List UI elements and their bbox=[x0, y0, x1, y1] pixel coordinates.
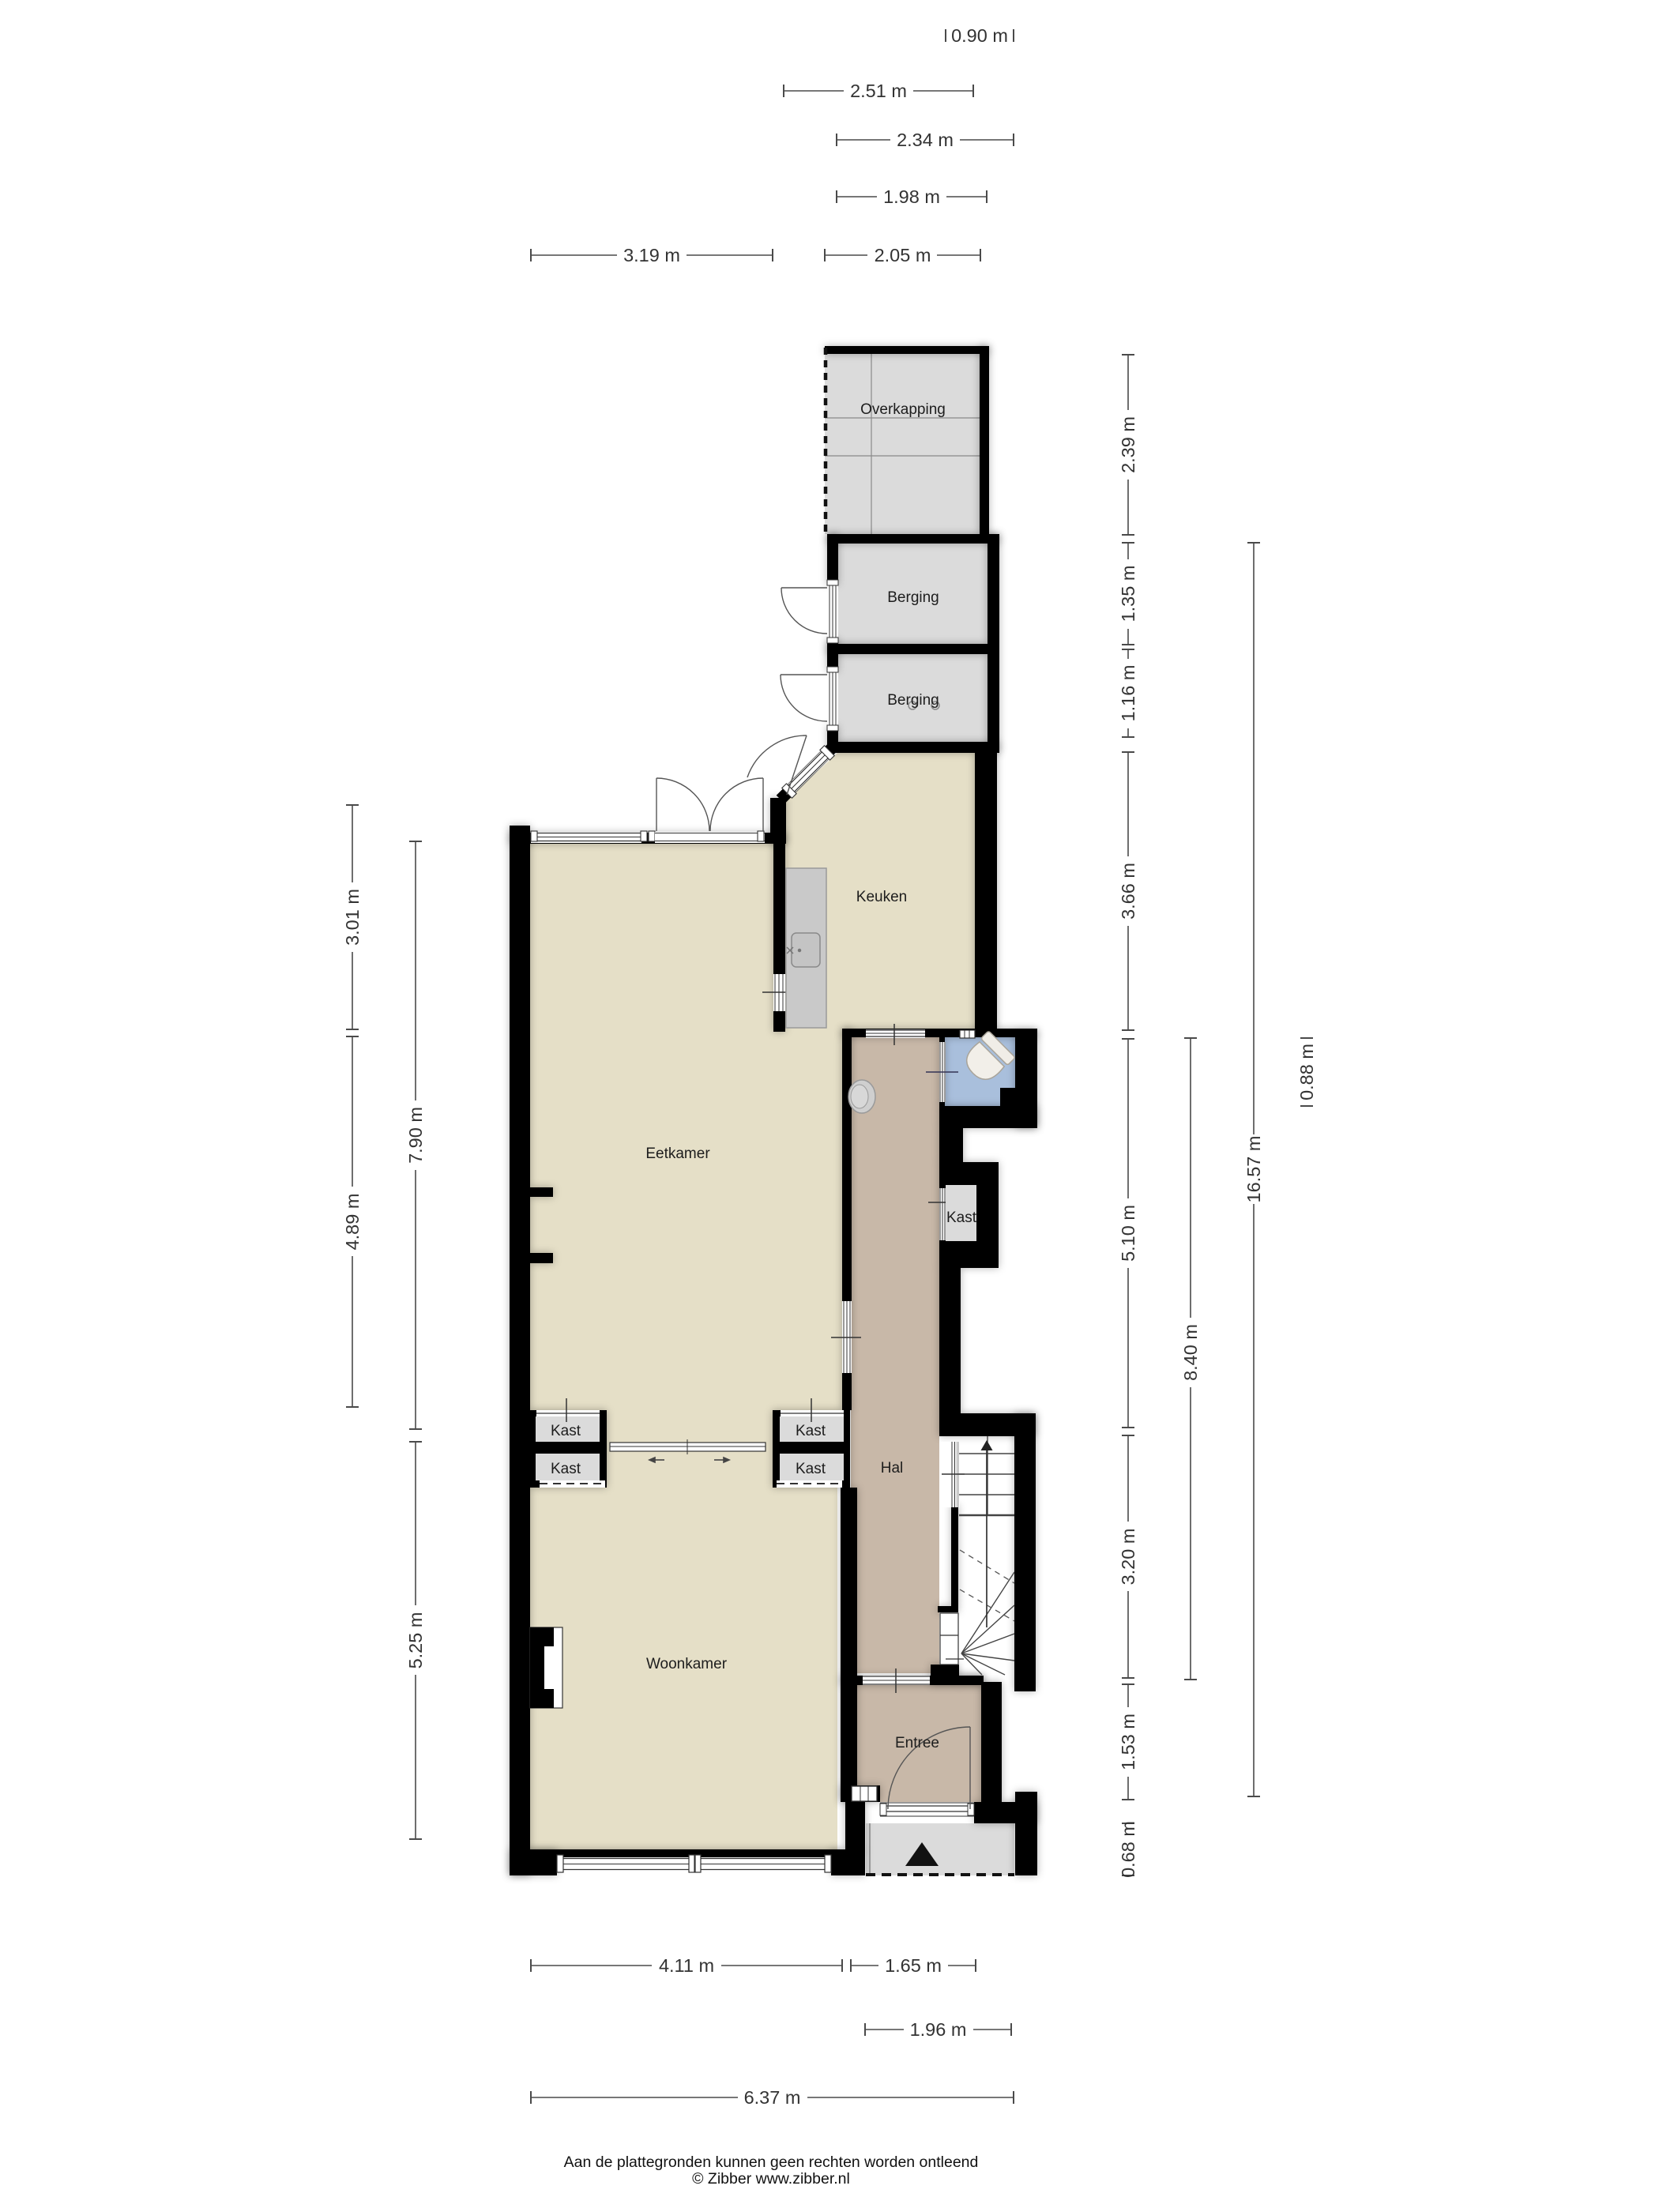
svg-text:1.98 m: 1.98 m bbox=[883, 186, 940, 207]
svg-text:16.57 m: 16.57 m bbox=[1243, 1136, 1264, 1203]
svg-text:Overkapping: Overkapping bbox=[860, 401, 946, 418]
svg-text:Kast: Kast bbox=[796, 1461, 826, 1477]
svg-text:5.10 m: 5.10 m bbox=[1118, 1205, 1138, 1262]
svg-text:4.11 m: 4.11 m bbox=[659, 1955, 714, 1976]
svg-text:8.40 m: 8.40 m bbox=[1180, 1324, 1201, 1381]
svg-text:3.20 m: 3.20 m bbox=[1118, 1529, 1138, 1586]
svg-text:1.65 m: 1.65 m bbox=[885, 1955, 942, 1976]
svg-text:Kast: Kast bbox=[551, 1423, 581, 1439]
svg-text:2.51 m: 2.51 m bbox=[850, 81, 907, 101]
svg-text:Aan de plattegronden kunnen ge: Aan de plattegronden kunnen geen rechten… bbox=[564, 2154, 979, 2171]
svg-text:Kast: Kast bbox=[551, 1461, 581, 1477]
svg-text:3.19 m: 3.19 m bbox=[623, 245, 680, 265]
svg-text:1.16 m: 1.16 m bbox=[1118, 665, 1138, 722]
svg-text:Keuken: Keuken bbox=[856, 889, 907, 905]
svg-text:Hal: Hal bbox=[881, 1460, 904, 1477]
svg-text:© Zibber www.zibber.nl: © Zibber www.zibber.nl bbox=[692, 2170, 850, 2188]
svg-text:Eetkamer: Eetkamer bbox=[645, 1145, 710, 1162]
svg-text:1.53 m: 1.53 m bbox=[1118, 1714, 1138, 1770]
svg-text:0.68 m: 0.68 m bbox=[1118, 1821, 1138, 1878]
svg-text:Kast: Kast bbox=[946, 1209, 977, 1226]
svg-text:Woonkamer: Woonkamer bbox=[646, 1656, 728, 1672]
svg-text:Entree: Entree bbox=[895, 1735, 939, 1751]
svg-text:7.90 m: 7.90 m bbox=[405, 1107, 426, 1164]
svg-text:2.34 m: 2.34 m bbox=[897, 130, 954, 150]
svg-text:1.35 m: 1.35 m bbox=[1118, 566, 1138, 623]
svg-text:0.88 m: 0.88 m bbox=[1296, 1044, 1317, 1100]
svg-text:1.96 m: 1.96 m bbox=[910, 2019, 967, 2040]
svg-text:3.66 m: 3.66 m bbox=[1118, 863, 1138, 920]
svg-text:5.25 m: 5.25 m bbox=[405, 1612, 426, 1669]
svg-text:2.05 m: 2.05 m bbox=[875, 245, 931, 265]
svg-text:0.90 m: 0.90 m bbox=[951, 25, 1008, 46]
svg-text:Kast: Kast bbox=[796, 1423, 826, 1439]
svg-text:2.39 m: 2.39 m bbox=[1118, 416, 1138, 473]
svg-text:4.89 m: 4.89 m bbox=[342, 1194, 363, 1251]
svg-text:3.01 m: 3.01 m bbox=[342, 889, 363, 946]
svg-text:Berging: Berging bbox=[887, 692, 939, 709]
svg-text:Berging: Berging bbox=[887, 589, 939, 606]
svg-text:6.37 m: 6.37 m bbox=[744, 2087, 801, 2108]
